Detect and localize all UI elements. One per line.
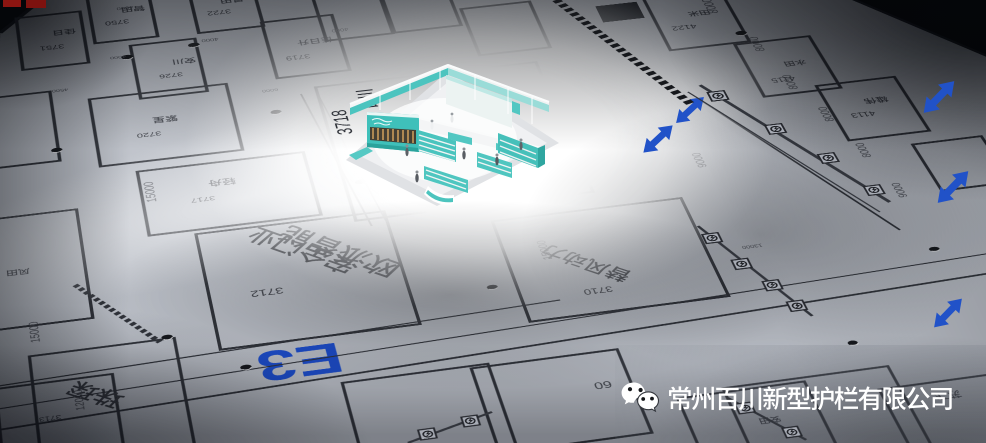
svg-text:3718: 3718 bbox=[328, 109, 358, 136]
